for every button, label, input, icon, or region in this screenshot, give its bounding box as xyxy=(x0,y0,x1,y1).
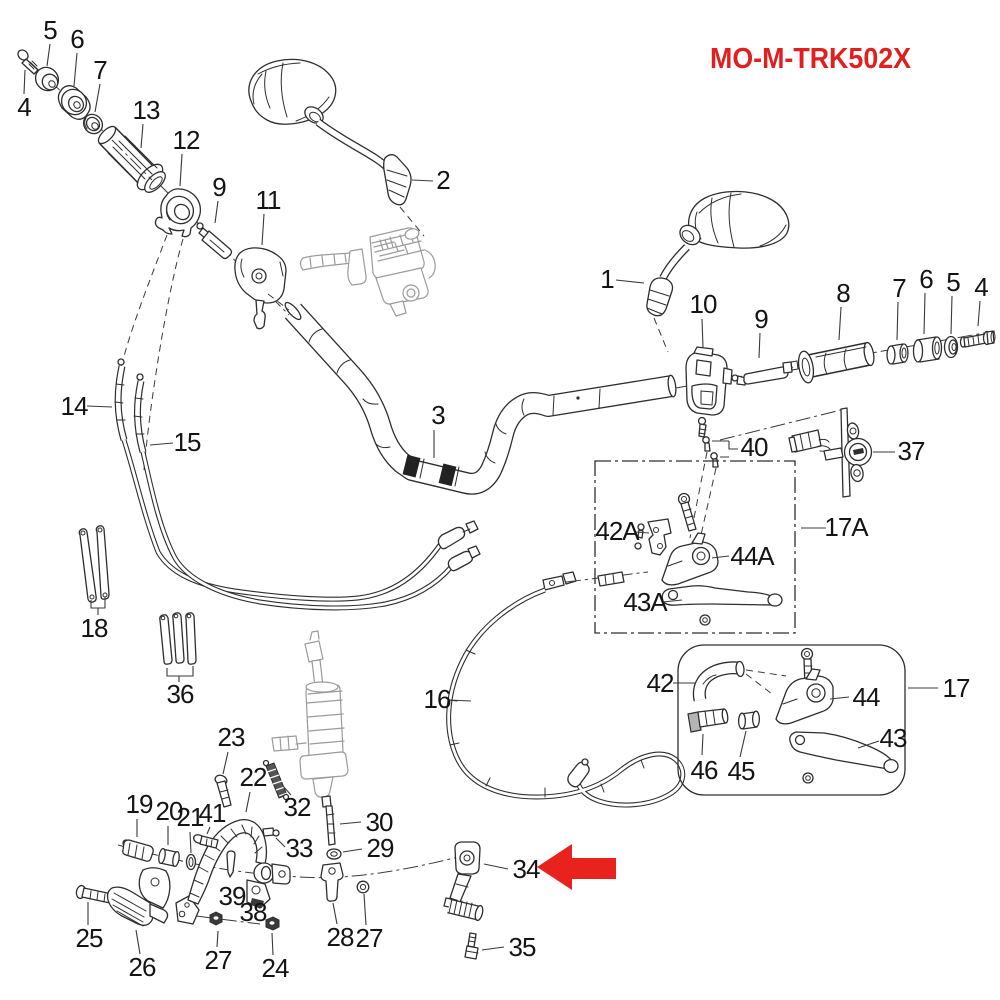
svg-text:13: 13 xyxy=(133,95,160,125)
svg-text:44: 44 xyxy=(853,682,880,712)
svg-text:9: 9 xyxy=(754,304,768,334)
svg-text:1: 1 xyxy=(600,264,614,294)
svg-text:35: 35 xyxy=(509,932,536,962)
svg-text:22: 22 xyxy=(240,762,267,792)
svg-text:15: 15 xyxy=(174,427,201,457)
svg-text:43A: 43A xyxy=(623,587,668,617)
svg-text:27: 27 xyxy=(356,923,383,953)
svg-text:5: 5 xyxy=(946,267,960,297)
svg-text:26: 26 xyxy=(129,952,156,982)
svg-text:17A: 17A xyxy=(824,512,869,542)
svg-text:36: 36 xyxy=(167,679,194,709)
svg-text:41: 41 xyxy=(199,798,226,828)
svg-text:33: 33 xyxy=(286,833,313,863)
svg-text:4: 4 xyxy=(974,272,988,302)
svg-text:4: 4 xyxy=(17,92,31,122)
svg-text:25: 25 xyxy=(76,923,103,953)
svg-text:18: 18 xyxy=(81,613,108,643)
svg-text:6: 6 xyxy=(70,24,84,54)
svg-text:34: 34 xyxy=(513,854,540,884)
svg-text:27: 27 xyxy=(205,945,232,975)
svg-text:14: 14 xyxy=(61,391,88,421)
svg-text:28: 28 xyxy=(327,922,354,952)
svg-text:32: 32 xyxy=(284,792,311,822)
svg-text:24: 24 xyxy=(262,953,289,983)
svg-text:40: 40 xyxy=(741,432,768,462)
svg-text:46: 46 xyxy=(691,755,718,785)
svg-text:42: 42 xyxy=(647,668,674,698)
svg-text:3: 3 xyxy=(431,400,445,430)
svg-text:29: 29 xyxy=(367,833,394,863)
svg-text:45: 45 xyxy=(728,756,755,786)
svg-text:8: 8 xyxy=(836,278,850,308)
svg-text:19: 19 xyxy=(126,789,153,819)
svg-text:2: 2 xyxy=(436,165,450,195)
svg-text:6: 6 xyxy=(919,264,933,294)
svg-text:37: 37 xyxy=(898,436,925,466)
svg-text:11: 11 xyxy=(256,185,282,215)
svg-text:5: 5 xyxy=(43,15,57,45)
svg-text:16: 16 xyxy=(424,684,451,714)
svg-text:9: 9 xyxy=(212,172,226,202)
svg-text:23: 23 xyxy=(218,722,245,752)
svg-text:38: 38 xyxy=(240,897,267,927)
svg-text:MO-M-TRK502X: MO-M-TRK502X xyxy=(710,43,912,75)
svg-text:44A: 44A xyxy=(730,541,775,571)
svg-text:7: 7 xyxy=(892,273,906,303)
svg-text:42A: 42A xyxy=(595,516,640,546)
svg-text:7: 7 xyxy=(93,55,107,85)
svg-text:10: 10 xyxy=(690,289,717,319)
svg-text:12: 12 xyxy=(173,125,200,155)
svg-text:43: 43 xyxy=(880,723,907,753)
svg-text:17: 17 xyxy=(943,673,970,703)
